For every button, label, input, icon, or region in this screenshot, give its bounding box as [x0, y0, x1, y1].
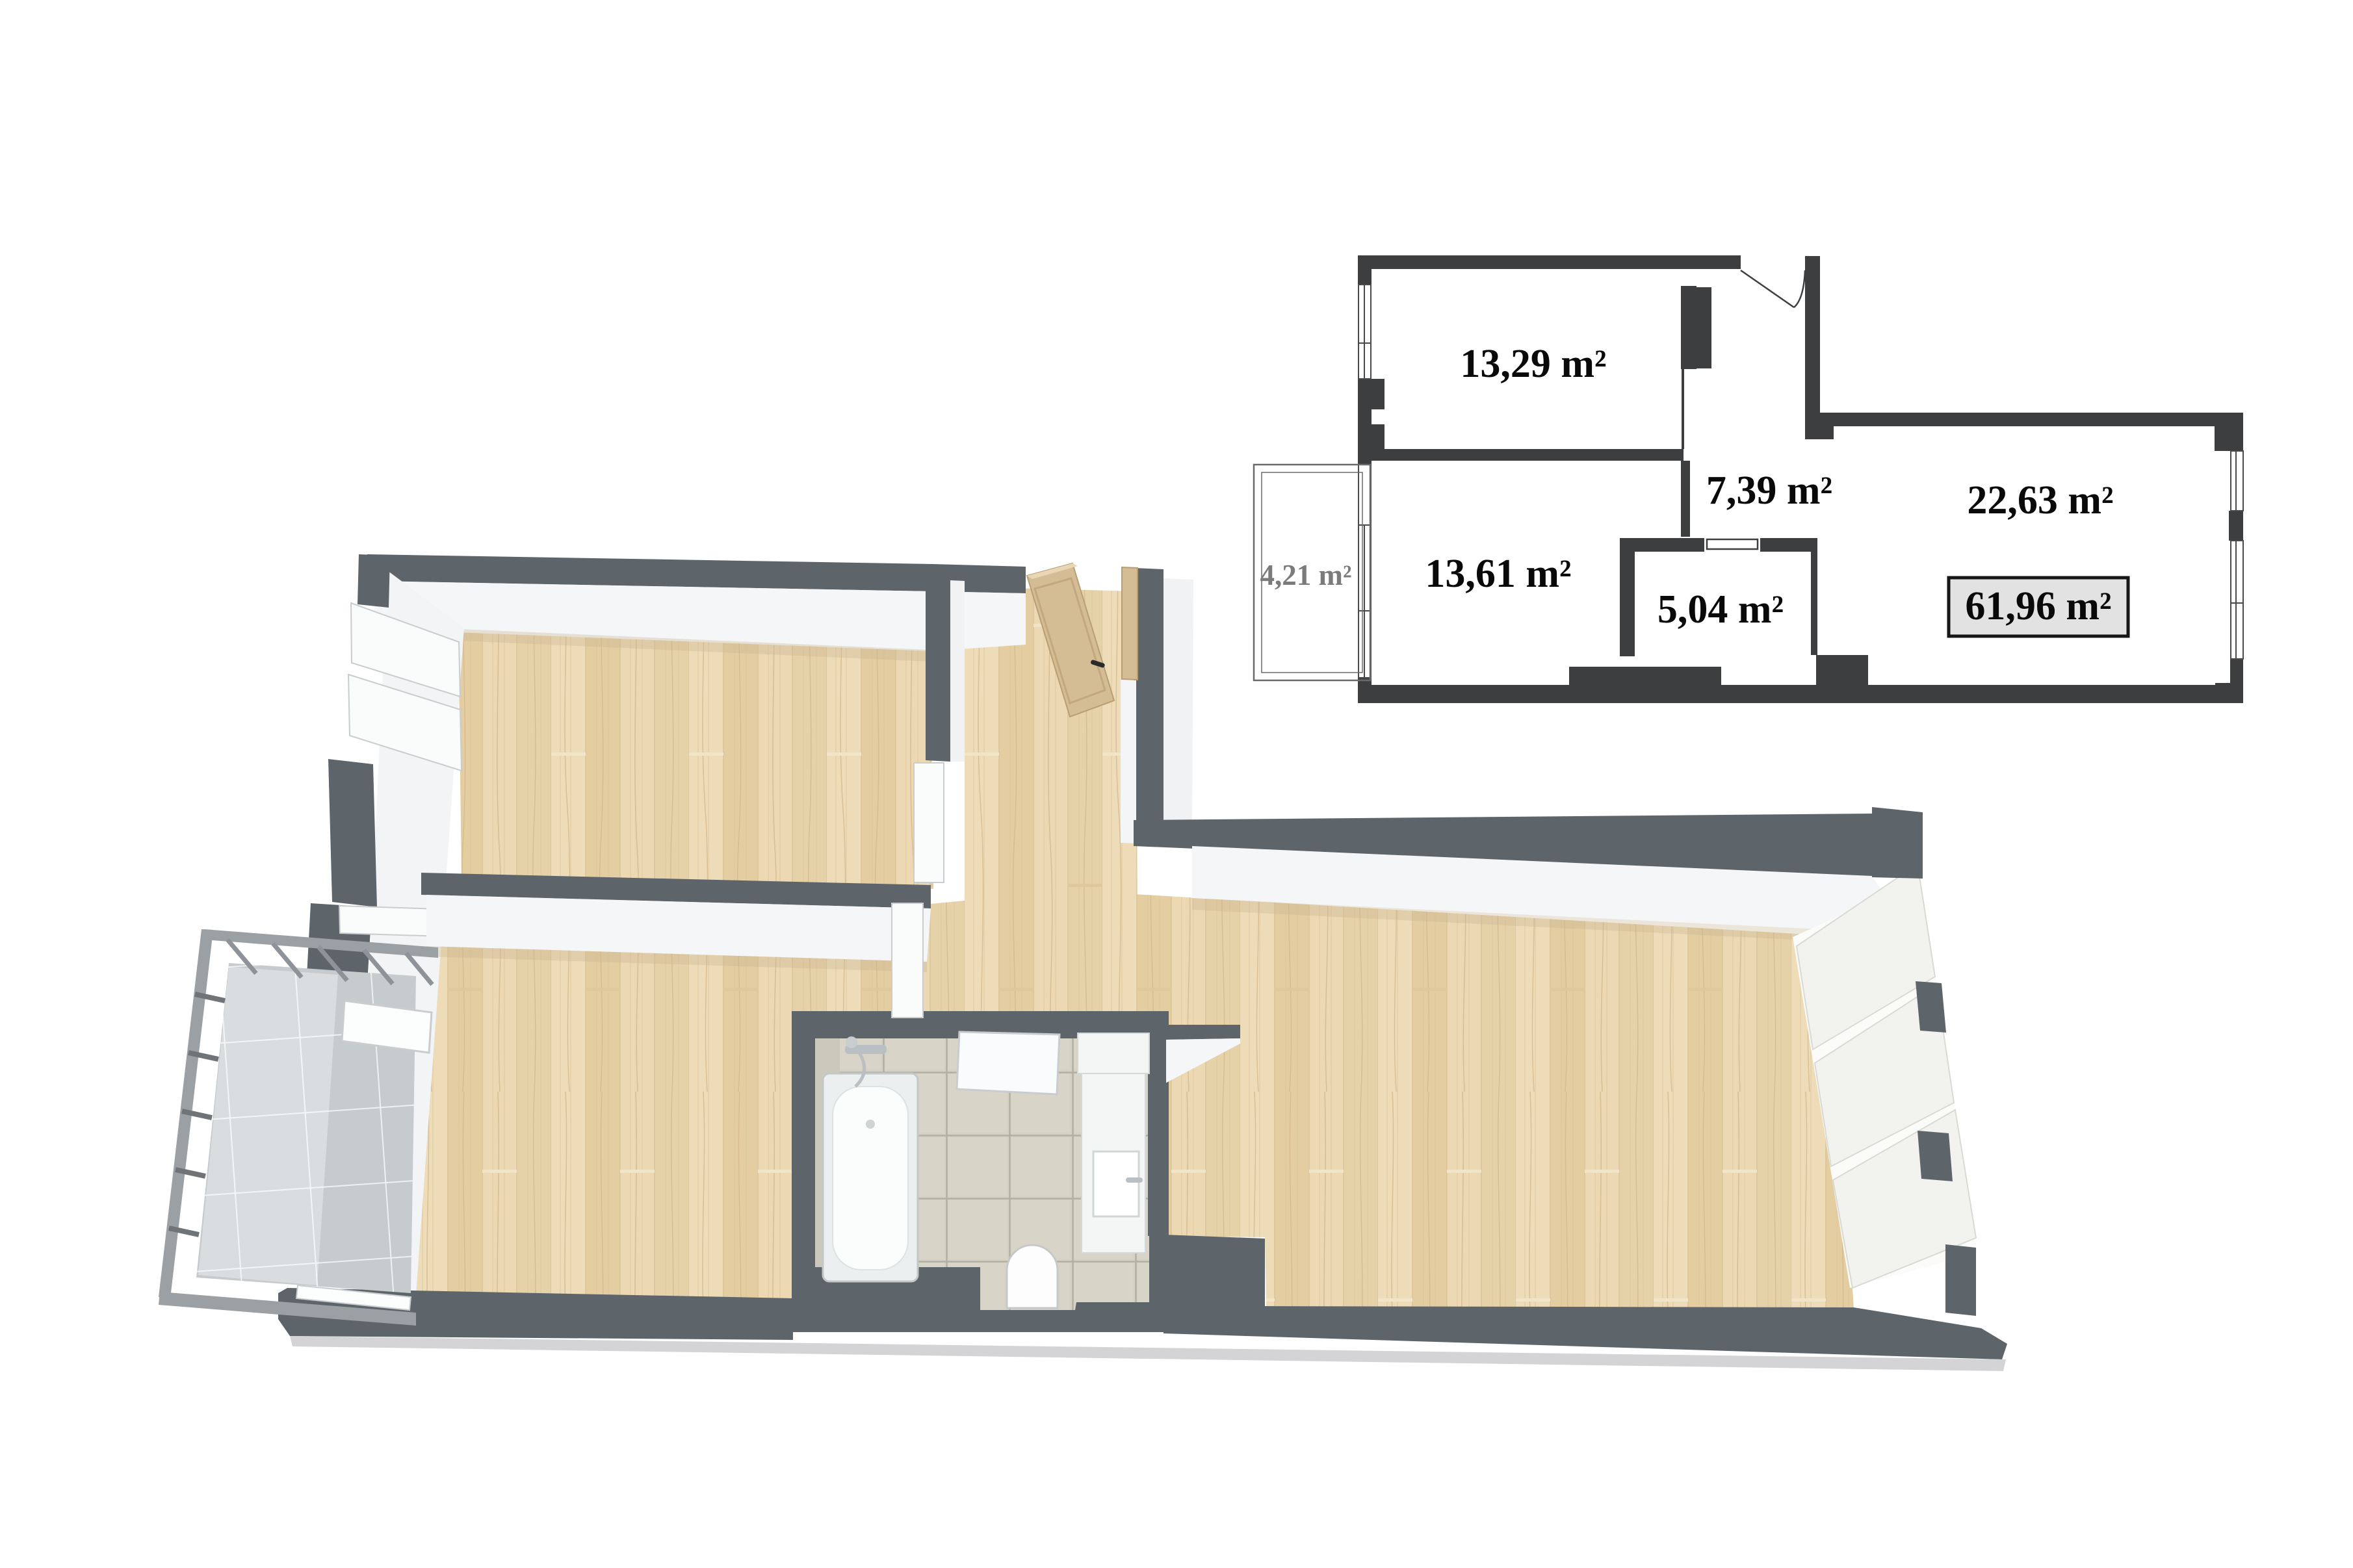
svg-text:4,21 m²: 4,21 m² [1260, 559, 1352, 591]
svg-text:13,61 m²: 13,61 m² [1425, 552, 1571, 596]
svg-text:7,39 m²: 7,39 m² [1706, 469, 1832, 513]
svg-text:5,04 m²: 5,04 m² [1657, 587, 1784, 632]
svg-text:61,96 m²: 61,96 m² [1965, 584, 2111, 628]
svg-text:13,29 m²: 13,29 m² [1460, 342, 1606, 386]
svg-text:22,63 m²: 22,63 m² [1967, 478, 2113, 522]
